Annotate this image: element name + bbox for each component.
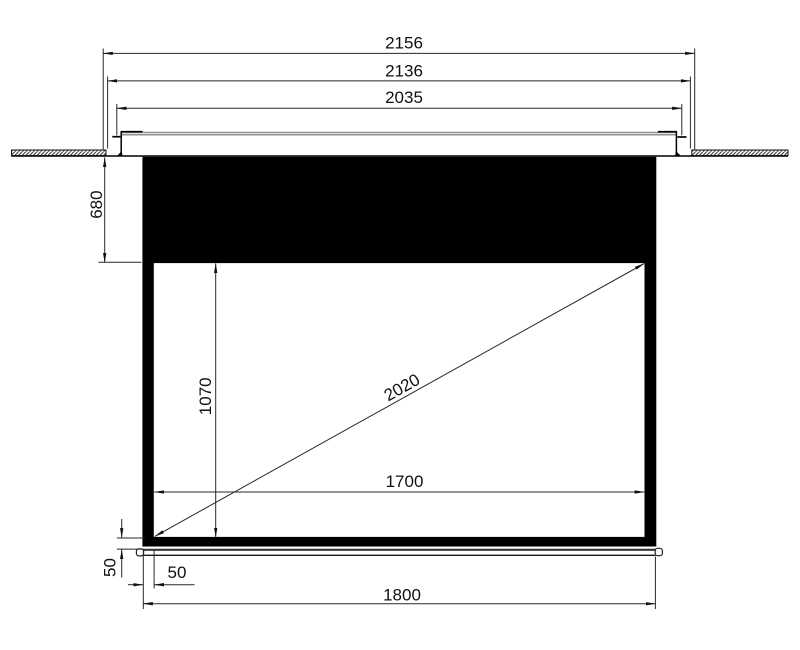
svg-text:2156: 2156 (385, 34, 423, 53)
svg-text:1800: 1800 (383, 585, 421, 604)
svg-text:2136: 2136 (385, 61, 423, 80)
svg-text:1700: 1700 (386, 472, 424, 491)
svg-text:1070: 1070 (196, 377, 215, 415)
svg-text:680: 680 (87, 190, 106, 218)
svg-text:50: 50 (101, 558, 120, 577)
svg-text:50: 50 (168, 563, 187, 582)
svg-text:2035: 2035 (385, 88, 423, 107)
